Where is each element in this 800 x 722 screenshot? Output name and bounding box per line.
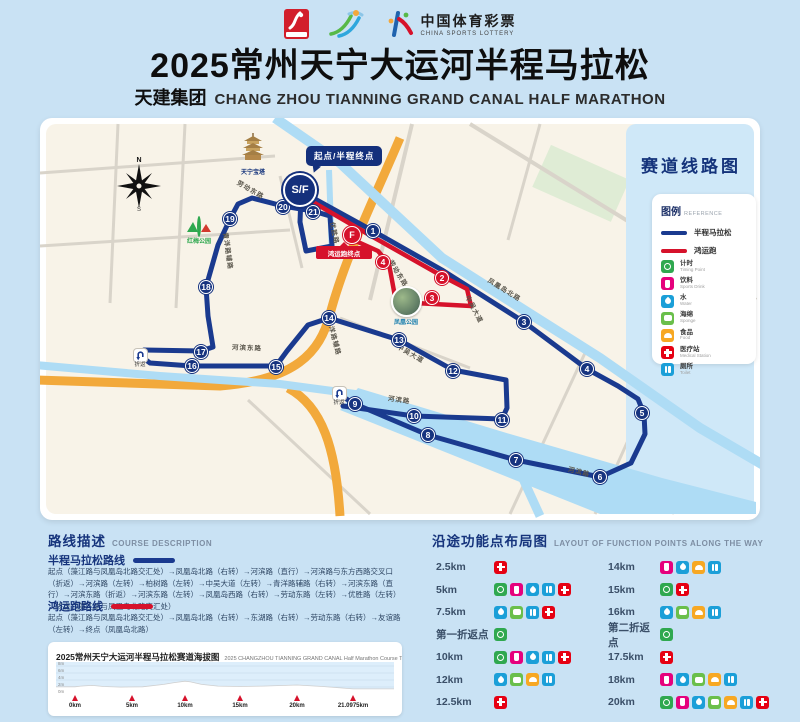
- toilet-icon: [526, 606, 539, 619]
- function-point-label: 17.5km: [608, 651, 660, 663]
- toilet-glyph: [711, 609, 719, 616]
- water-glyph: [662, 608, 670, 616]
- timing-icon: [494, 651, 507, 664]
- legend-line-label: 鸿运跑: [694, 245, 717, 256]
- water-icon: [526, 651, 539, 664]
- sponsor-logos: 中国体育彩票 CHINA SPORTS LOTTERY: [0, 6, 800, 42]
- food-icon: [724, 696, 737, 709]
- function-point-icons: [494, 673, 555, 686]
- timing-glyph: [497, 631, 504, 638]
- fun-route-swatch: [111, 604, 153, 609]
- legend-line-label: 半程马拉松: [694, 227, 732, 238]
- timing-glyph: [663, 699, 670, 706]
- timing-icon: [660, 583, 673, 596]
- function-point-row: 20km: [608, 691, 769, 714]
- water-icon: [661, 295, 674, 308]
- legend-line-swatch: [661, 231, 687, 235]
- function-point-label: 18km: [608, 674, 660, 686]
- function-point-label: 15km: [608, 584, 660, 596]
- function-point-label: 20km: [608, 696, 660, 708]
- runner-logo: [325, 8, 369, 40]
- food-icon: [692, 606, 705, 619]
- water-icon: [660, 606, 673, 619]
- toilet-icon: [740, 696, 753, 709]
- bank-sponsor-logo: [284, 9, 309, 39]
- sponge-icon: [661, 312, 674, 325]
- fun-run-route-desc: 起点（藻江路与凤凰岛北路交汇处）→凤凰岛北路（右转）→东湖路（右转）→劳动东路（…: [48, 612, 404, 635]
- legend-item-text: 计时Timing Point: [680, 261, 705, 273]
- elevation-x-label: 10km: [163, 703, 207, 709]
- toilet-icon: [708, 606, 721, 619]
- food-icon: [526, 673, 539, 686]
- drink-icon: [676, 696, 689, 709]
- elevation-y-tick: 0m: [58, 689, 64, 694]
- course-map-panel: 劳动东路劳动东路凤凰岛北路河滨东路河滨路河滨路中吴大道中吴大道青洋路辅路青洋路辅…: [40, 118, 760, 520]
- km-marker: [72, 695, 78, 701]
- drink-glyph: [664, 563, 669, 571]
- function-point-label: 16km: [608, 606, 660, 618]
- water-icon: [676, 561, 689, 574]
- legend-item-text: 医疗站Medical Station: [680, 347, 711, 359]
- function-point-row: 15km: [608, 579, 769, 602]
- park-label: 红梅公园: [182, 236, 216, 245]
- elevation-profile: [56, 662, 394, 702]
- event-subtitle-row: 天建集团CHANG ZHOU TIANNING GRAND CANAL HALF…: [0, 84, 800, 110]
- photo-label: 凤凰公园: [386, 317, 426, 326]
- function-point-icons: [660, 651, 673, 664]
- function-point-label: 12km: [436, 674, 494, 686]
- compass-rose: N S: [112, 154, 166, 217]
- function-point-icons: [494, 583, 571, 596]
- lottery-name-cn: 中国体育彩票: [421, 11, 517, 31]
- legend-title: 图例: [661, 207, 681, 218]
- medical-glyph: [679, 586, 687, 594]
- legend-item: 水Water: [661, 295, 747, 308]
- legend-item-label-en: Food: [680, 336, 693, 341]
- drink-glyph: [665, 280, 670, 288]
- function-point-icons: [660, 561, 721, 574]
- toilet-glyph: [529, 609, 537, 616]
- lottery-name-en: CHINA SPORTS LOTTERY: [421, 31, 517, 37]
- timing-icon: [660, 628, 673, 641]
- water-glyph: [528, 653, 536, 661]
- event-title: 2025常州天宁大运河半程马拉松: [0, 38, 800, 87]
- function-point-label: 2.5km: [436, 561, 494, 573]
- medical-icon: [676, 583, 689, 596]
- function-points-right-column: 14km15km16km第二折返点17.5km18km20km: [608, 556, 769, 714]
- function-point-icons: [660, 628, 673, 641]
- food-glyph: [711, 677, 719, 682]
- timing-icon: [661, 260, 674, 273]
- legend-item-text: 饮料Sports Drink: [680, 278, 705, 290]
- water-icon: [494, 606, 507, 619]
- water-glyph: [528, 586, 536, 594]
- timing-icon: [494, 583, 507, 596]
- medical-icon: [494, 696, 507, 709]
- legend-subtitle: REFERENCE: [684, 211, 722, 217]
- sponge-icon: [708, 696, 721, 709]
- legend-item-label-en: Water: [680, 302, 692, 307]
- legend-route-lines: 半程马拉松鸿运跑: [661, 227, 747, 256]
- drink-icon: [510, 583, 523, 596]
- km-marker: [294, 695, 300, 701]
- food-glyph: [727, 700, 735, 705]
- food-glyph: [695, 610, 703, 615]
- svg-text:S: S: [137, 207, 141, 212]
- elevation-x-label: 21.0975km: [331, 703, 375, 709]
- function-point-icons: [494, 651, 571, 664]
- function-point-icons: [494, 696, 507, 709]
- drink-icon: [660, 673, 673, 686]
- sponge-glyph: [513, 609, 521, 615]
- sponge-icon: [510, 606, 523, 619]
- function-point-label: 12.5km: [436, 696, 494, 708]
- function-point-icons: [494, 628, 507, 641]
- legend-item-label-en: Toilet: [680, 371, 693, 376]
- toilet-icon: [542, 583, 555, 596]
- medical-icon: [660, 651, 673, 664]
- water-icon: [526, 583, 539, 596]
- sponge-glyph: [513, 677, 521, 683]
- toilet-glyph: [545, 586, 553, 593]
- medical-icon: [756, 696, 769, 709]
- timing-glyph: [663, 586, 670, 593]
- medical-icon: [542, 606, 555, 619]
- km-marker: [237, 695, 243, 701]
- function-point-label: 第一折返点: [436, 627, 494, 642]
- toilet-glyph: [545, 654, 553, 661]
- legend-item: 食品Food: [661, 329, 747, 342]
- medical-icon: [661, 346, 674, 359]
- event-subtitle-en: CHANG ZHOU TIANNING GRAND CANAL HALF MAR…: [214, 91, 665, 108]
- timing-glyph: [497, 586, 504, 593]
- toilet-glyph: [743, 699, 751, 706]
- function-point-label: 10km: [436, 651, 494, 663]
- medical-glyph: [561, 586, 569, 594]
- start-finish-callout: 起点/半程终点: [306, 146, 382, 166]
- elevation-y-tick: 6m: [58, 668, 64, 673]
- bank-logo-mark: [286, 10, 307, 32]
- medical-glyph: [497, 698, 505, 706]
- photo-icon: [391, 286, 422, 317]
- function-point-row: 2.5km: [436, 556, 571, 579]
- food-icon: [708, 673, 721, 686]
- function-point-row: 18km: [608, 669, 769, 692]
- legend-item: 医疗站Medical Station: [661, 346, 747, 359]
- function-points-left-column: 2.5km5km7.5km第一折返点10km12km12.5km: [436, 556, 571, 714]
- food-icon: [692, 561, 705, 574]
- elevation-x-label: 15km: [218, 703, 262, 709]
- food-icon: [661, 329, 674, 342]
- toilet-glyph: [664, 366, 672, 373]
- legend-item-label-en: Sponge: [680, 319, 696, 324]
- km-marker: [350, 695, 356, 701]
- toilet-icon: [542, 673, 555, 686]
- function-point-label: 14km: [608, 561, 660, 573]
- legend-item-text: 食品Food: [680, 330, 693, 342]
- park-icon: [197, 216, 201, 237]
- pagoda-landmark: 天宁宝塔: [236, 132, 270, 176]
- water-glyph: [496, 676, 504, 684]
- legend-item-label-en: Medical Station: [680, 354, 711, 359]
- medical-glyph: [663, 653, 671, 661]
- course-description-heading: 路线描述COURSE DESCRIPTION: [48, 530, 212, 550]
- legend-service-items: 计时Timing Point饮料Sports Drink水Water海绵Spon…: [661, 260, 747, 376]
- medical-glyph: [561, 653, 569, 661]
- sponsor-prefix: 天建集团: [134, 88, 206, 108]
- medical-glyph: [545, 608, 553, 616]
- course-description-heading-en: COURSE DESCRIPTION: [112, 539, 212, 548]
- water-icon: [676, 673, 689, 686]
- water-glyph: [663, 297, 671, 305]
- bank-logo-band: [286, 32, 307, 37]
- sponge-glyph: [695, 677, 703, 683]
- sponge-icon: [676, 606, 689, 619]
- legend-line: 半程马拉松: [661, 227, 747, 238]
- toilet-icon: [708, 561, 721, 574]
- fun-run-finish-marker: F: [343, 226, 361, 244]
- function-point-icons: [494, 606, 555, 619]
- compass-north-label: N: [136, 157, 141, 164]
- photo-landmark: 凤凰公园: [386, 286, 426, 326]
- function-point-row: 5km: [436, 579, 571, 602]
- toilet-glyph: [711, 564, 719, 571]
- function-point-icons: [660, 606, 721, 619]
- legend-line-swatch: [661, 249, 687, 253]
- function-point-row: 14km: [608, 556, 769, 579]
- legend-item-label-en: Timing Point: [680, 268, 705, 273]
- km-marker: [182, 695, 188, 701]
- medical-icon: [494, 561, 507, 574]
- legend-item: 海绵Sponge: [661, 312, 747, 325]
- medical-glyph: [759, 698, 767, 706]
- function-points-heading-en: LAYOUT OF FUNCTION POINTS ALONG THE WAY: [554, 539, 763, 548]
- sponge-glyph: [664, 315, 672, 321]
- medical-icon: [558, 583, 571, 596]
- timing-icon: [494, 628, 507, 641]
- toilet-icon: [724, 673, 737, 686]
- sponge-glyph: [711, 699, 719, 705]
- legend-item: 饮料Sports Drink: [661, 277, 747, 290]
- km-marker: [129, 695, 135, 701]
- function-point-row: 12km: [436, 669, 571, 692]
- elevation-title: 2025常州天宁大运河半程马拉松赛道海拔图: [56, 652, 219, 662]
- legend-item-text: 水Water: [680, 295, 692, 307]
- pagoda-icon: [238, 132, 268, 162]
- function-point-row: 7.5km: [436, 601, 571, 624]
- start-finish-marker: S/F: [283, 173, 317, 207]
- timing-glyph: [664, 263, 671, 270]
- elevation-y-tick: 2m: [58, 682, 64, 687]
- drink-glyph: [514, 586, 519, 594]
- water-glyph: [678, 676, 686, 684]
- pagoda-label: 天宁宝塔: [236, 167, 270, 176]
- drink-glyph: [680, 698, 685, 706]
- food-glyph: [529, 677, 537, 682]
- park-landmark: 红梅公园: [182, 218, 216, 245]
- drink-icon: [510, 651, 523, 664]
- function-point-row: 10km: [436, 646, 571, 669]
- function-point-row: 第一折返点: [436, 624, 571, 647]
- legend-item-text: 厕所Toilet: [680, 364, 693, 376]
- elevation-y-tick: 4m: [58, 675, 64, 680]
- medical-glyph: [664, 349, 672, 357]
- toilet-glyph: [545, 676, 553, 683]
- marathon-course-poster: { "header": { "title": "2025常州天宁大运河半程马拉松…: [0, 0, 800, 722]
- drink-icon: [660, 561, 673, 574]
- food-glyph: [664, 333, 672, 338]
- legend-line: 鸿运跑: [661, 245, 747, 256]
- function-point-icons: [494, 561, 507, 574]
- elevation-x-label: 5km: [110, 703, 154, 709]
- legend-item-label-en: Sports Drink: [680, 285, 705, 290]
- timing-icon: [660, 696, 673, 709]
- toilet-icon: [542, 651, 555, 664]
- water-icon: [494, 673, 507, 686]
- timing-glyph: [497, 654, 504, 661]
- function-point-icons: [660, 673, 737, 686]
- sponge-glyph: [679, 609, 687, 615]
- elevation-y-tick: 8m: [58, 662, 64, 666]
- sports-lottery-logo: 中国体育彩票 CHINA SPORTS LOTTERY: [385, 9, 517, 39]
- drink-glyph: [664, 676, 669, 684]
- function-point-label: 第二折返点: [608, 620, 660, 650]
- sponge-icon: [510, 673, 523, 686]
- half-route-swatch: [133, 558, 175, 563]
- function-point-label: 5km: [436, 584, 494, 596]
- sports-lottery-mark: [385, 9, 415, 39]
- drink-icon: [661, 277, 674, 290]
- water-glyph: [694, 698, 702, 706]
- water-icon: [692, 696, 705, 709]
- elevation-chart: 2025常州天宁大运河半程马拉松赛道海拔图2025 CHANGZHOU TIAN…: [48, 642, 402, 716]
- function-point-row: 第二折返点: [608, 624, 769, 647]
- fun-run-finish-callout: 鸿运跑终点: [316, 246, 372, 259]
- toilet-icon: [661, 363, 674, 376]
- medical-glyph: [497, 563, 505, 571]
- elevation-x-label: 20km: [275, 703, 319, 709]
- function-point-icons: [660, 696, 769, 709]
- toilet-glyph: [727, 676, 735, 683]
- function-point-label: 7.5km: [436, 606, 494, 618]
- water-glyph: [496, 608, 504, 616]
- drink-glyph: [514, 653, 519, 661]
- elevation-plot: 8m6m4m2m0m: [56, 662, 394, 702]
- elevation-x-label: 0km: [53, 703, 97, 709]
- legend-item: 计时Timing Point: [661, 260, 747, 273]
- function-points-heading: 沿途功能点布局图LAYOUT OF FUNCTION POINTS ALONG …: [432, 530, 763, 550]
- timing-glyph: [663, 631, 670, 638]
- function-point-row: 12.5km: [436, 691, 571, 714]
- food-glyph: [695, 565, 703, 570]
- map-legend: 图例REFERENCE 半程马拉松鸿运跑 计时Timing Point饮料Spo…: [652, 194, 756, 364]
- function-point-icons: [660, 583, 689, 596]
- map-title: 赛道线路图: [624, 152, 758, 177]
- sponge-icon: [692, 673, 705, 686]
- legend-item: 厕所Toilet: [661, 363, 747, 376]
- legend-item-text: 海绵Sponge: [680, 312, 696, 324]
- water-glyph: [678, 563, 686, 571]
- medical-icon: [558, 651, 571, 664]
